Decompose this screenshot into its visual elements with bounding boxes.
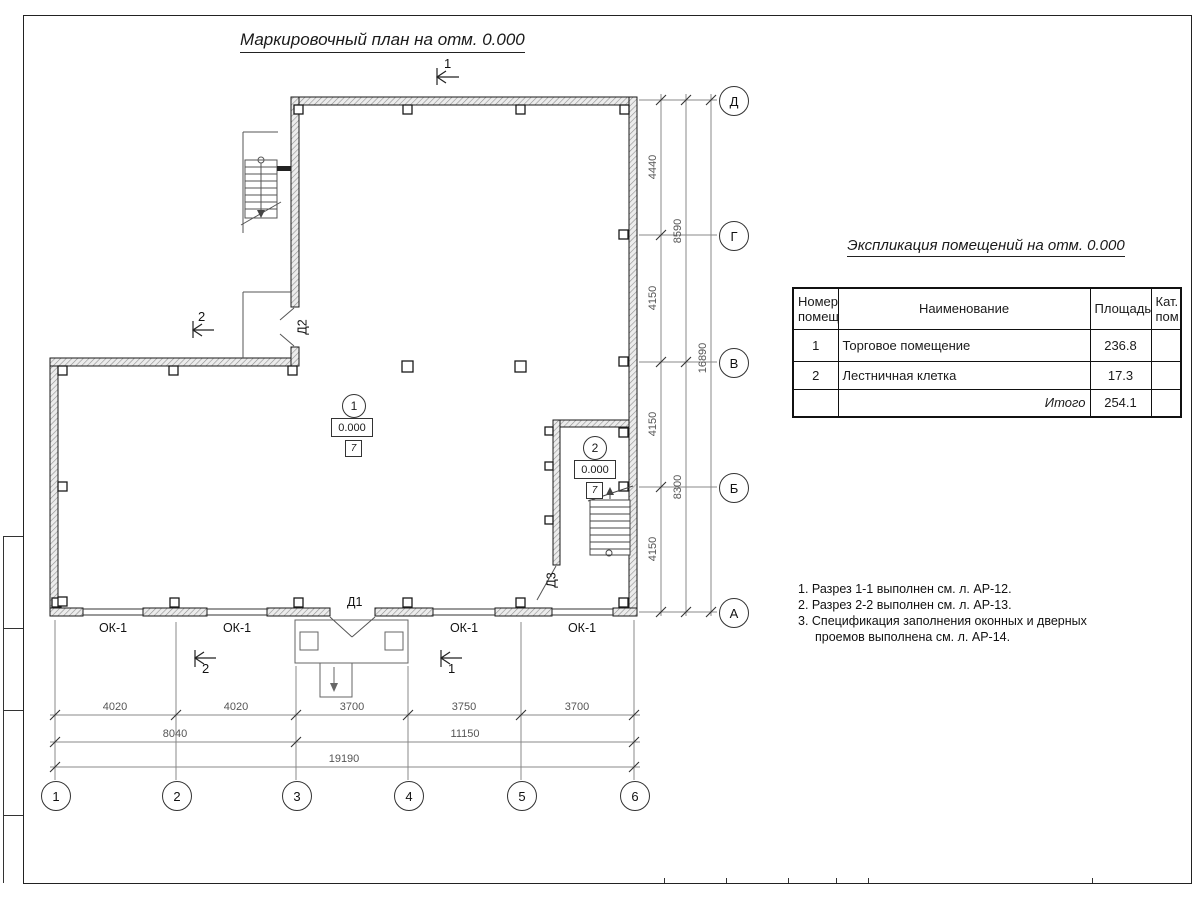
schedule-row-1-name: Торговое помещение [838, 329, 1090, 361]
notes-block: 1. Разрез 1-1 выполнен см. л. АР-12. 2. … [798, 581, 1138, 645]
room-2-elevation: 0.000 [574, 460, 616, 479]
walls-layer [50, 97, 637, 616]
drawing-sheet: Маркировочный план на отм. 0.000 1 1 2 2… [0, 0, 1200, 900]
axis-row-g: Г [719, 221, 749, 251]
schedule-row-2-area: 17.3 [1090, 361, 1151, 389]
room-2-category: 7 [586, 482, 603, 499]
room-1-number: 1 [342, 394, 366, 418]
schedule-row-2-number: 2 [793, 361, 838, 389]
dim-right-4150-2: 4150 [647, 404, 659, 444]
schedule-total-category [1151, 389, 1181, 417]
axis-row-a: А [719, 598, 749, 628]
dim-right-8590: 8590 [672, 211, 684, 251]
dim-bottom-19190: 19190 [319, 753, 369, 765]
window-label-ok1: ОК-1 [560, 621, 604, 635]
schedule-row-2-name: Лестничная клетка [838, 361, 1090, 389]
room-1-category: 7 [345, 440, 362, 457]
axis-row-v: В [719, 348, 749, 378]
section-mark-1-top: 1 [444, 56, 451, 71]
door-label-d1: Д1 [347, 595, 362, 609]
axis-col-1: 1 [41, 781, 71, 811]
door-label-d2: Д2 [296, 319, 310, 334]
stair-upper-left [241, 132, 291, 358]
schedule-row-2-category [1151, 361, 1181, 389]
dim-right-4150-3: 4150 [647, 529, 659, 569]
section-mark-arrows [193, 68, 462, 667]
axis-col-2: 2 [162, 781, 192, 811]
window-label-ok1: ОК-1 [442, 621, 486, 635]
dim-bottom-3750: 3750 [439, 701, 489, 713]
dim-right-8300: 8300 [672, 467, 684, 507]
door-label-d3: Д3 [545, 572, 559, 587]
axis-col-5: 5 [507, 781, 537, 811]
schedule-total-label: Итого [838, 389, 1090, 417]
dim-bottom-11150: 11150 [440, 728, 490, 740]
schedule-title: Экспликация помещений на отм. 0.000 [847, 237, 1124, 257]
schedule-header-name: Наименование [838, 288, 1090, 329]
schedule-row-1-category [1151, 329, 1181, 361]
schedule-header-number: Номер помещ. [793, 288, 838, 329]
section-mark-1-bottom: 1 [448, 661, 455, 676]
dim-right-4150-1: 4150 [647, 278, 659, 318]
dim-bottom-4020-2: 4020 [211, 701, 261, 713]
plan-title: Маркировочный план на отм. 0.000 [240, 30, 525, 53]
window-label-ok1: ОК-1 [215, 621, 259, 635]
schedule-header-area: Площадь [1090, 288, 1151, 329]
dim-bottom-8040: 8040 [150, 728, 200, 740]
schedule-row-1: 1 Торговое помещение 236.8 [793, 329, 1181, 361]
window-label-ok1: ОК-1 [91, 621, 135, 635]
room-1-elevation: 0.000 [331, 418, 373, 437]
schedule-title-wrap: Экспликация помещений на отм. 0.000 [792, 237, 1180, 255]
schedule-row-1-number: 1 [793, 329, 838, 361]
dim-right-16890: 16890 [697, 333, 709, 383]
porch-arrowhead [330, 683, 338, 692]
porch [295, 620, 408, 697]
dim-bottom-3700-1: 3700 [327, 701, 377, 713]
schedule-header-category: Кат. пом. [1151, 288, 1181, 329]
dim-right-4440: 4440 [647, 147, 659, 187]
axis-col-6: 6 [620, 781, 650, 811]
section-mark-2-left: 2 [198, 309, 205, 324]
note-1: 1. Разрез 1-1 выполнен см. л. АР-12. [798, 581, 1138, 597]
axis-row-b: Б [719, 473, 749, 503]
schedule-total-empty [793, 389, 838, 417]
door-leaves [280, 308, 556, 637]
axis-row-d: Д [719, 86, 749, 116]
dim-bottom-3700-2: 3700 [552, 701, 602, 713]
note-3: 3. Спецификация заполнения оконных и две… [798, 613, 1138, 645]
schedule-header-row: Номер помещ. Наименование Площадь Кат. п… [793, 288, 1181, 329]
section-mark-2-bottom: 2 [202, 661, 209, 676]
stair-upper-connector [277, 166, 291, 171]
note-2: 2. Разрез 2-2 выполнен см. л. АР-13. [798, 597, 1138, 613]
room-schedule-table: Номер помещ. Наименование Площадь Кат. п… [792, 287, 1182, 418]
dim-bottom-4020-1: 4020 [90, 701, 140, 713]
stair-room2-arrowhead [606, 487, 614, 495]
axis-col-3: 3 [282, 781, 312, 811]
column-markers [52, 105, 629, 607]
axis-col-4: 4 [394, 781, 424, 811]
room-2-number: 2 [583, 436, 607, 460]
schedule-total-row: Итого 254.1 [793, 389, 1181, 417]
schedule-row-2: 2 Лестничная клетка 17.3 [793, 361, 1181, 389]
schedule-row-1-area: 236.8 [1090, 329, 1151, 361]
schedule-total-area: 254.1 [1090, 389, 1151, 417]
